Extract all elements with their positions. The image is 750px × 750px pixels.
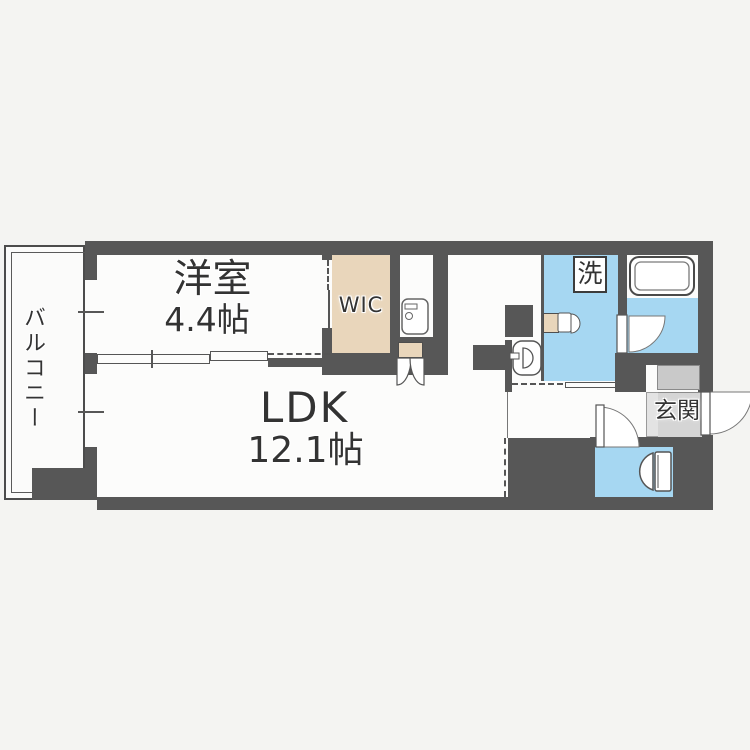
wic-label: WIC bbox=[330, 294, 392, 316]
ldk-label: LDK bbox=[222, 386, 387, 430]
double-closet-door-icon bbox=[397, 358, 424, 385]
kitchen-sink-icon bbox=[402, 299, 428, 334]
ldk-size-label: 12.1帖 bbox=[213, 432, 398, 470]
vanity-sink-icon bbox=[558, 313, 580, 333]
washbasin-icon bbox=[510, 341, 541, 375]
entrance-label: 玄関 bbox=[646, 399, 708, 423]
floor-plan-page: { "page": {"type": "apartment-floor-plan… bbox=[0, 0, 750, 750]
bedroom-size-label: 4.4帖 bbox=[127, 303, 287, 338]
bedroom-label: 洋室 bbox=[130, 260, 295, 301]
entrance-door-icon bbox=[701, 392, 750, 435]
fixtures-layer bbox=[0, 0, 750, 750]
bathroom-door-icon bbox=[617, 315, 665, 353]
toilet-door-icon bbox=[596, 405, 639, 447]
toilet-icon bbox=[640, 452, 671, 491]
bathtub-icon bbox=[630, 257, 694, 295]
